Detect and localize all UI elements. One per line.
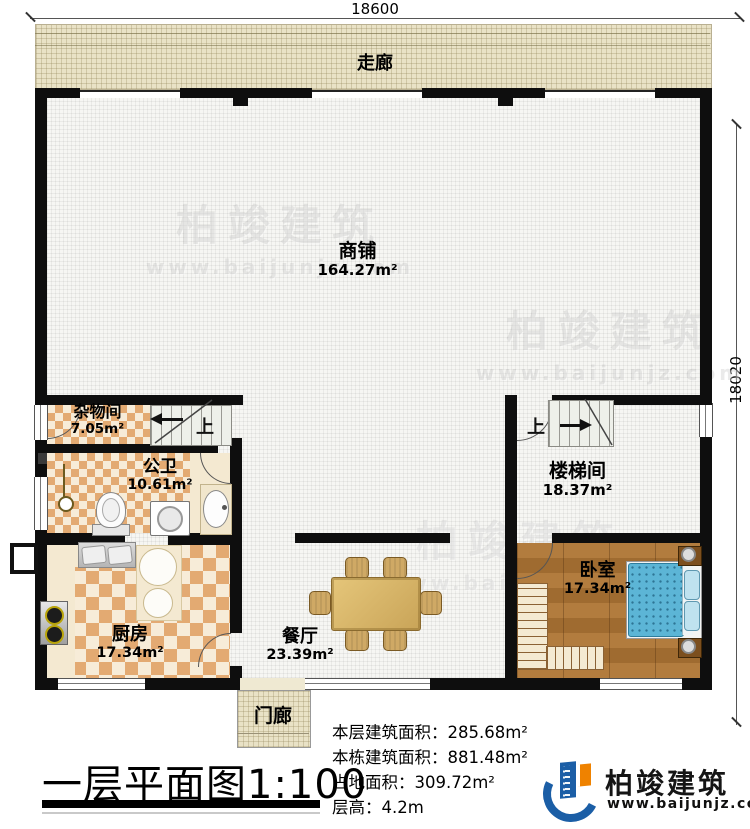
room-name: 餐厅 xyxy=(245,626,355,647)
stat-label: 层高： xyxy=(332,798,382,817)
room-area: 7.05m² xyxy=(45,422,150,438)
room-label-porch: 门廊 xyxy=(237,705,309,727)
stat-value: 881.48m² xyxy=(448,748,528,767)
room-area: 164.27m² xyxy=(295,262,420,280)
chair xyxy=(383,629,407,651)
title-underline xyxy=(42,800,320,808)
pillow xyxy=(684,570,700,600)
room-label-shop: 商铺 164.27m² xyxy=(295,240,420,280)
brand-logo: 柏竣建筑 www.baijunjz.com xyxy=(543,760,743,822)
room-name: 厨房 xyxy=(75,624,185,645)
room-area: 23.39m² xyxy=(245,647,355,664)
pillow xyxy=(684,601,700,631)
stat-line: 本层建筑面积：285.68m² xyxy=(332,720,528,745)
room-name: 卧室 xyxy=(540,560,655,581)
room-label-bedroom: 卧室 17.34m² xyxy=(540,560,655,598)
chair xyxy=(309,591,331,615)
logo-building-icon xyxy=(560,761,576,798)
stairs-up-arrow-bar xyxy=(161,418,183,421)
chair xyxy=(345,557,369,579)
nightstand-lamp xyxy=(681,547,696,562)
room-label-kitchen: 厨房 17.34m² xyxy=(75,624,185,662)
burner xyxy=(45,606,64,625)
room-name: 公卫 xyxy=(110,457,210,477)
stat-label: 占地面积： xyxy=(332,773,415,792)
stairs-up-label: 上 xyxy=(196,413,214,439)
stairs-up-label: 上 xyxy=(527,413,545,439)
room-name: 商铺 xyxy=(295,240,420,262)
title-underline-thin xyxy=(42,812,320,814)
stat-line: 层高：4.2m xyxy=(332,795,528,820)
faucet xyxy=(222,505,227,510)
stat-value: 309.72m² xyxy=(415,773,495,792)
room-name: 门廊 xyxy=(237,705,309,727)
toilet-bowl xyxy=(102,498,120,522)
sink-basin xyxy=(107,545,133,565)
round-counter xyxy=(139,548,177,586)
porch-step-line xyxy=(237,733,309,734)
sink-basin xyxy=(81,545,107,565)
chair xyxy=(420,591,442,615)
stat-line: 占地面积：309.72m² xyxy=(332,770,528,795)
room-label-stairwell: 楼梯间 18.37m² xyxy=(520,460,635,500)
stat-value: 4.2m xyxy=(382,798,424,817)
stat-line: 本栋建筑面积：881.48m² xyxy=(332,745,528,770)
room-area: 18.37m² xyxy=(520,482,635,500)
floor-plan-canvas: 18600 18020 走廊 柏竣建筑 www.baijunjz.com 柏竣建… xyxy=(0,0,750,829)
chair xyxy=(383,557,407,579)
room-area: 17.34m² xyxy=(75,645,185,662)
room-label-dining: 餐厅 23.39m² xyxy=(245,626,355,664)
stats-block: 本层建筑面积：285.68m² 本栋建筑面积：881.48m² 占地面积：309… xyxy=(332,720,528,820)
logo-building-orange xyxy=(578,763,591,786)
stat-label: 本层建筑面积： xyxy=(332,723,448,742)
washer-drum xyxy=(157,506,183,532)
burner xyxy=(45,625,64,644)
ceiling-lamp xyxy=(58,496,74,512)
bedroom-stair-run xyxy=(546,646,604,670)
room-area: 10.61m² xyxy=(110,477,210,494)
lamp-cord xyxy=(63,464,65,498)
stairs-up-arrow xyxy=(580,419,592,431)
room-name: 杂物间 xyxy=(45,403,150,422)
dining-table xyxy=(331,577,421,631)
nightstand-lamp xyxy=(681,639,696,654)
brand-url: www.baijunjz.com xyxy=(607,796,750,812)
stat-value: 285.68m² xyxy=(448,723,528,742)
room-name: 楼梯间 xyxy=(520,460,635,482)
room-label-bathroom: 公卫 10.61m² xyxy=(110,457,210,494)
round-counter xyxy=(143,588,173,618)
stairs-up-arrow-bar xyxy=(560,424,580,427)
stat-label: 本栋建筑面积： xyxy=(332,748,448,767)
room-label-storage: 杂物间 7.05m² xyxy=(45,403,150,438)
room-area: 17.34m² xyxy=(540,581,655,598)
